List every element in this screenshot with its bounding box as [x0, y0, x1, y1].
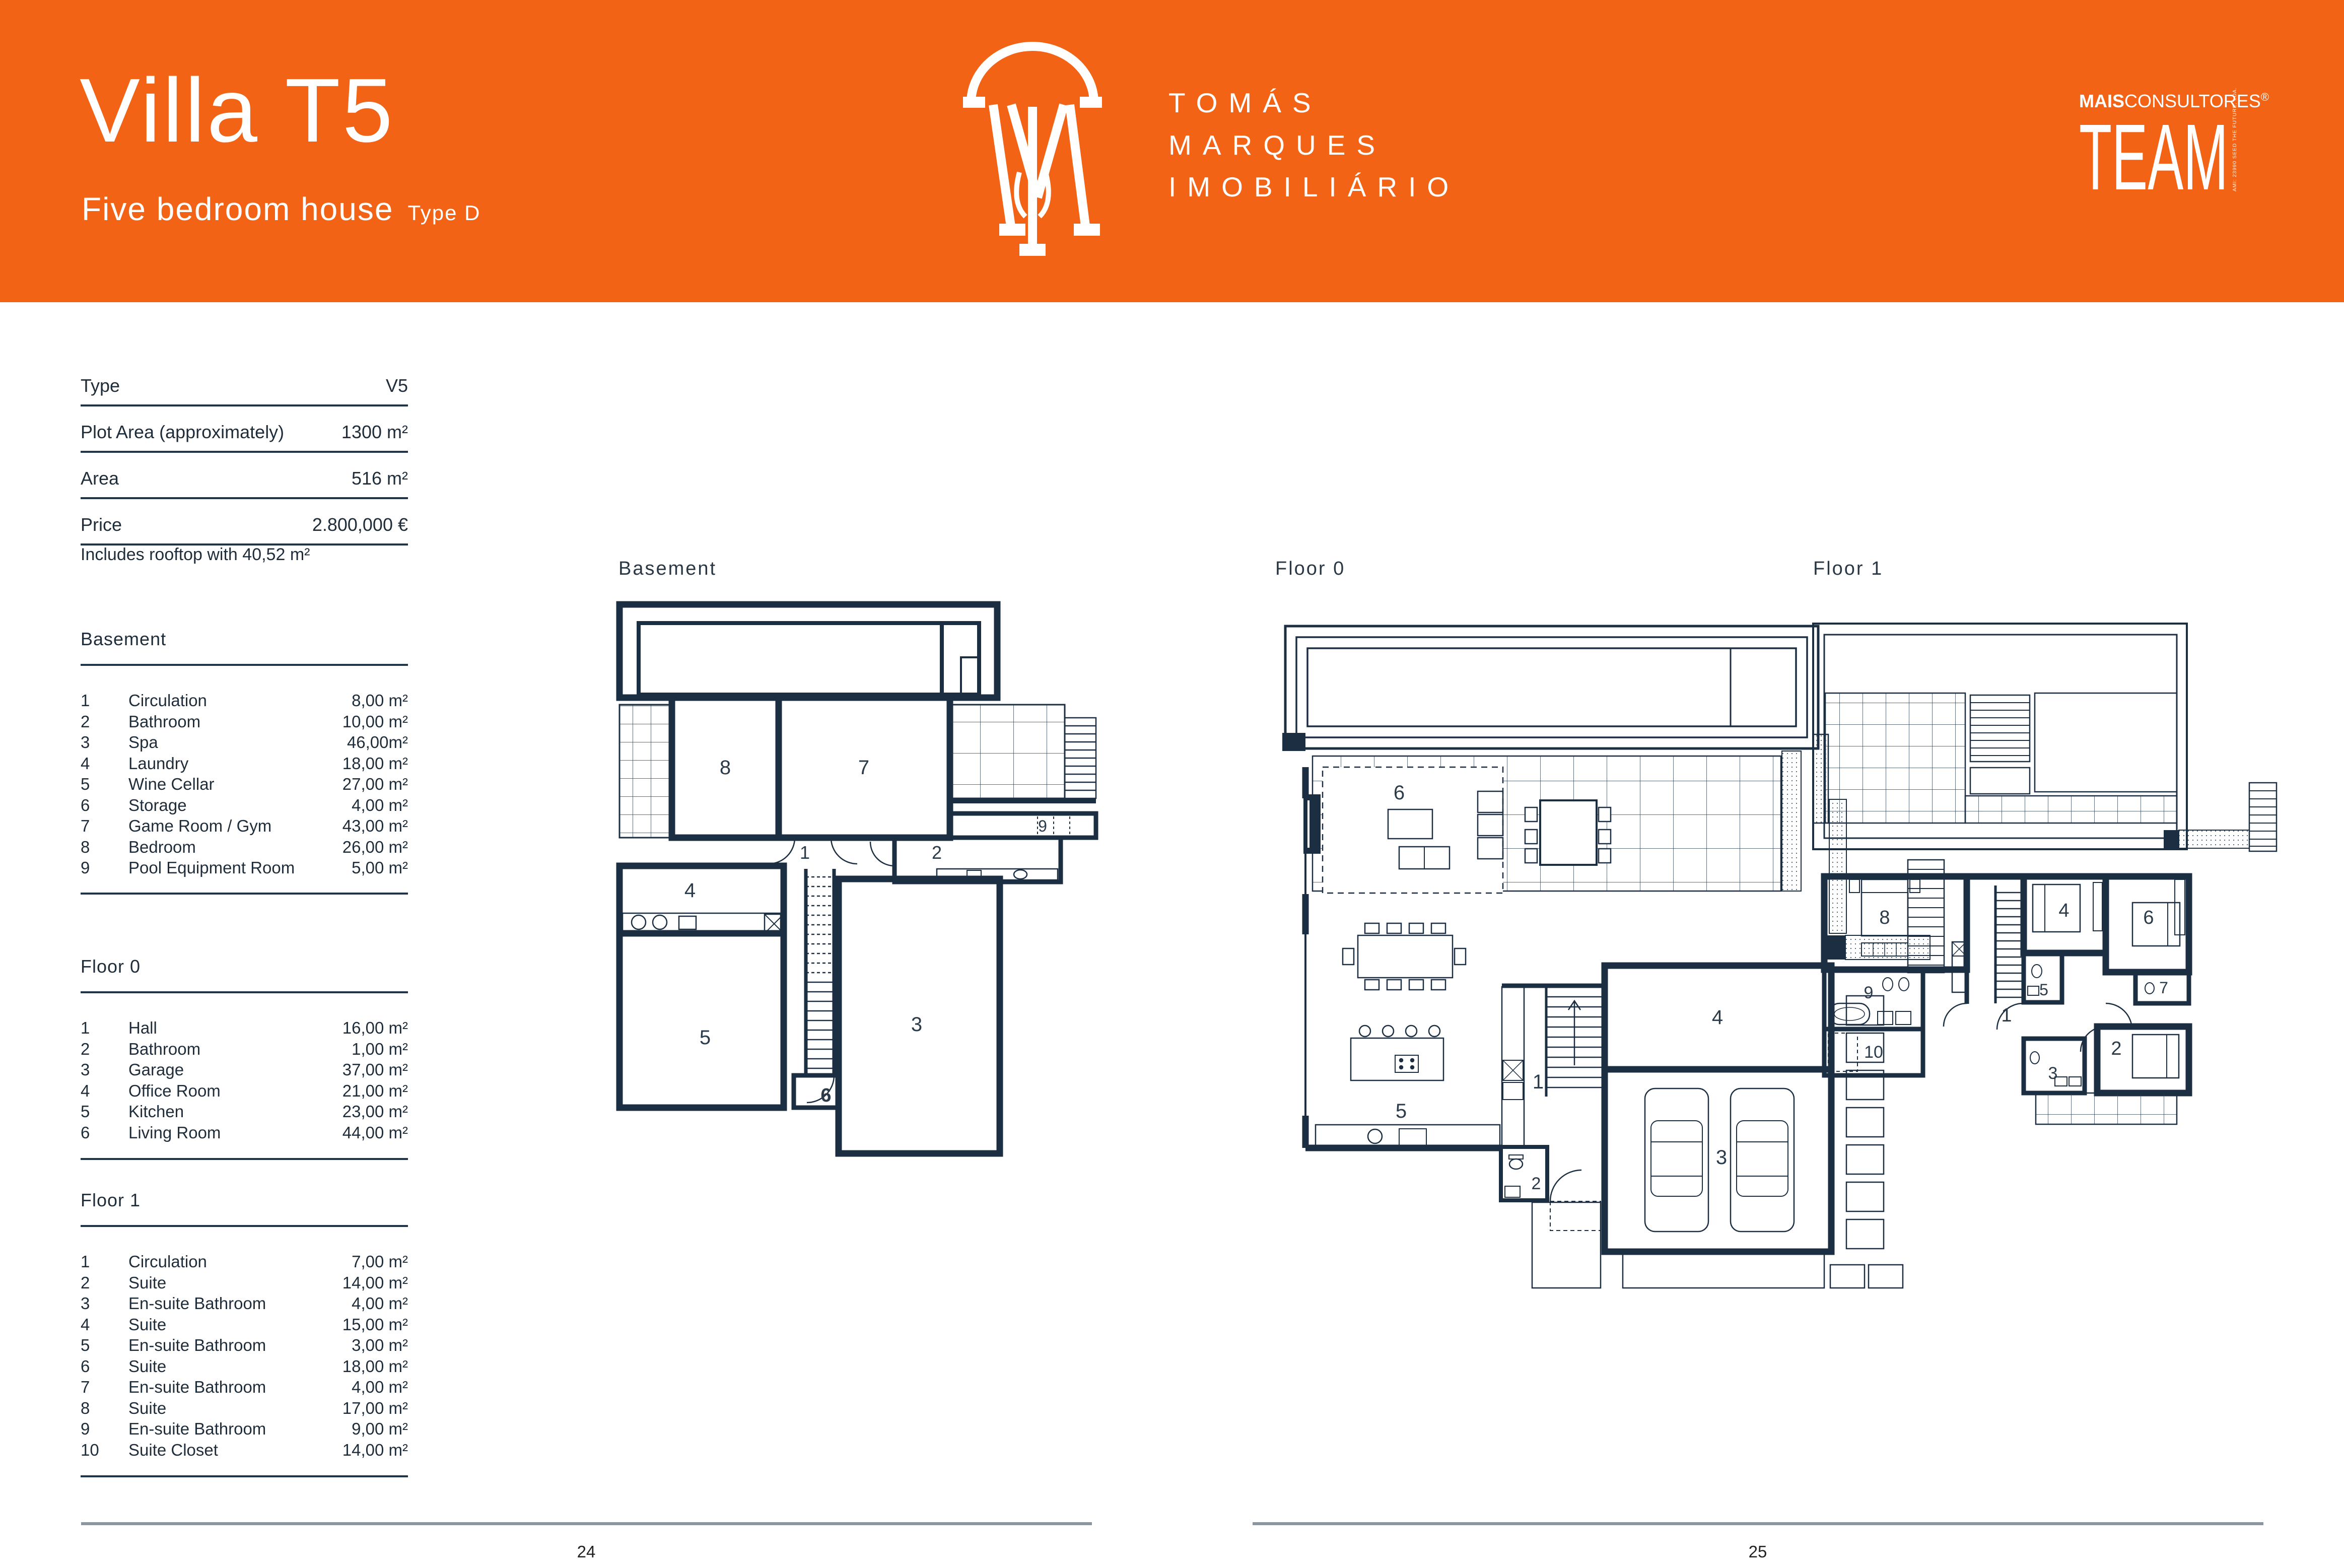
spec-value: 516 m² [352, 468, 408, 489]
floor0-stairs [1546, 987, 1603, 1097]
room-num: 5 [81, 1101, 128, 1122]
spec-table: Type V5 Plot Area (approximately) 1300 m… [81, 360, 408, 546]
room-label: 3 [911, 1013, 922, 1036]
basement-walls [619, 604, 1096, 1153]
room-area: 9,00 m² [352, 1418, 408, 1440]
legend-row: 9Pool Equipment Room5,00 m² [81, 857, 408, 878]
room-label: 7 [2159, 979, 2168, 997]
legend-floor0: Floor 0 1Hall16,00 m² 2Bathroom1,00 m² 3… [81, 956, 408, 1160]
room-name: Circulation [128, 1251, 352, 1272]
page-number-left: 24 [556, 1542, 616, 1561]
spec-label: Area [81, 468, 119, 489]
room-label: 2 [2111, 1038, 2121, 1059]
divider [81, 991, 408, 993]
room-name: Laundry [128, 753, 342, 774]
page-subtitle: Five bedroom houseType D [82, 190, 481, 228]
spec-row-area: Area 516 m² [81, 453, 408, 499]
legend-row: 4Suite15,00 m² [81, 1314, 408, 1335]
room-area: 18,00 m² [342, 1356, 408, 1377]
legend-row: 6Suite18,00 m² [81, 1356, 408, 1377]
room-num: 8 [81, 1398, 128, 1419]
room-area: 43,00 m² [342, 815, 408, 837]
room-label: 1 [800, 842, 810, 863]
room-label: 2 [932, 842, 942, 863]
room-label: 2 [1532, 1174, 1541, 1193]
room-label: 6 [1394, 782, 1405, 804]
divider [81, 1475, 408, 1477]
room-num: 6 [81, 795, 128, 816]
basement-floor-plan: 8 7 9 1 2 4 5 3 6 [614, 597, 1108, 1206]
legend-row: 7En-suite Bathroom4,00 m² [81, 1377, 408, 1398]
room-num: 7 [81, 815, 128, 837]
type-label: Type D [407, 201, 480, 225]
legend-row: 6Storage4,00 m² [81, 795, 408, 816]
legend-row: 8Bedroom26,00 m² [81, 837, 408, 858]
room-area: 4,00 m² [352, 1293, 408, 1314]
floor0-plan-title: Floor 0 [1275, 558, 1345, 580]
hall-cabinets [1502, 987, 1524, 1146]
room-label: 9 [1038, 817, 1047, 835]
legend-row: 10Suite Closet14,00 m² [81, 1440, 408, 1461]
spec-label: Plot Area (approximately) [81, 422, 284, 443]
room-num: 6 [81, 1122, 128, 1143]
room-label: 5 [700, 1027, 711, 1049]
room-label: 5 [1396, 1100, 1407, 1122]
room-num: 7 [81, 1377, 128, 1398]
room-area: 18,00 m² [342, 753, 408, 774]
room-label: 4 [1712, 1006, 1723, 1029]
room-num: 9 [81, 1418, 128, 1440]
room-name: Suite Closet [128, 1440, 342, 1461]
floor1-floor-plan: 8 9 10 4 5 6 7 1 2 3 [1793, 594, 2342, 1249]
room-label: 1 [1533, 1071, 1544, 1093]
spec-row-type: Type V5 [81, 360, 408, 406]
room-area: 5,00 m² [352, 857, 408, 878]
room-name: Hall [128, 1017, 342, 1039]
room-area: 14,00 m² [342, 1272, 408, 1293]
room-name: Garage [128, 1059, 342, 1080]
legend-row: 3Garage37,00 m² [81, 1059, 408, 1080]
room-num: 8 [81, 837, 128, 858]
team-wordmark: TEAM [2079, 116, 2230, 195]
room-num: 4 [81, 753, 128, 774]
registered-mark: ® [2261, 91, 2269, 103]
legend-basement-title: Basement [81, 629, 408, 650]
exterior-stairs [1065, 718, 1096, 798]
room-name: Suite [128, 1272, 342, 1293]
car-icon [1645, 1088, 1708, 1232]
room-label: 4 [2058, 900, 2069, 921]
maisconsultores-wordmark: MAISCONSULTORES® [2079, 91, 2253, 112]
room-label: 1 [2001, 1005, 2012, 1026]
spec-value: 2.800,000 € [312, 514, 408, 535]
legend-floor0-title: Floor 0 [81, 956, 408, 977]
room-area: 37,00 m² [342, 1059, 408, 1080]
room-label: 6 [820, 1085, 831, 1106]
room-num: 5 [81, 1335, 128, 1356]
room-area: 44,00 m² [342, 1122, 408, 1143]
page-number-right: 25 [1728, 1542, 1788, 1561]
legend-row: 2Suite14,00 m² [81, 1272, 408, 1293]
room-name: Spa [128, 732, 347, 753]
room-name: Suite [128, 1356, 342, 1377]
basement-stairs [806, 869, 834, 1075]
brand-line3: IMOBILIÁRIO [1168, 166, 1460, 209]
room-area: 10,00 m² [342, 711, 408, 732]
room-num: 2 [81, 1039, 128, 1060]
legend-row: 4Office Room21,00 m² [81, 1080, 408, 1102]
spec-label: Price [81, 514, 122, 535]
room-num: 4 [81, 1080, 128, 1102]
room-name: Bedroom [128, 837, 342, 858]
room-name: En-suite Bathroom [128, 1377, 352, 1398]
room-name: Suite [128, 1314, 342, 1335]
rooftop-note: Includes rooftop with 40,52 m² [81, 545, 310, 565]
exterior-stairs [2249, 783, 2277, 851]
room-num: 1 [81, 690, 128, 711]
team-ami-text: AMI: 23990 SEED THE FUTURE, LDA. [2232, 116, 2238, 191]
room-area: 23,00 m² [342, 1101, 408, 1122]
footer-rule-right [1253, 1522, 2263, 1525]
floor1-plan-title: Floor 1 [1813, 558, 1883, 580]
skylight [1970, 693, 2177, 794]
page-title: Villa T5 [80, 65, 395, 156]
footer-rule-left [81, 1522, 1092, 1525]
legend-row: 2Bathroom1,00 m² [81, 1039, 408, 1060]
svg-text:TEAM: TEAM [2079, 116, 2228, 195]
brand-line2: MARQUES [1168, 124, 1460, 167]
room-label: 8 [1879, 907, 1890, 928]
legend-floor1-title: Floor 1 [81, 1190, 408, 1211]
bed-icon [2132, 1035, 2179, 1078]
bath9-fixtures [1824, 970, 1923, 1029]
spec-value: V5 [386, 375, 408, 396]
room-num: 3 [81, 1293, 128, 1314]
legend-basement: Basement 1Circulation8,00 m² 2Bathroom10… [81, 629, 408, 895]
divider [81, 1225, 408, 1227]
legend-row: 1Circulation7,00 m² [81, 1251, 408, 1272]
legend-row: 4Laundry18,00 m² [81, 753, 408, 774]
room-num: 1 [81, 1017, 128, 1039]
room-num: 2 [81, 711, 128, 732]
room-num: 10 [81, 1440, 128, 1461]
room-name: Bathroom [128, 1039, 352, 1060]
room-area: 3,00 m² [352, 1335, 408, 1356]
divider [81, 1158, 408, 1160]
legend-row: 1Circulation8,00 m² [81, 690, 408, 711]
consultores-text: CONSULTORES [2124, 91, 2261, 111]
room-label: 9 [1864, 983, 1874, 1002]
room-area: 21,00 m² [342, 1080, 408, 1102]
legend-row: 7Game Room / Gym43,00 m² [81, 815, 408, 837]
room-name: Office Room [128, 1080, 342, 1102]
spec-row-plot: Plot Area (approximately) 1300 m² [81, 406, 408, 453]
floor1-stairs [1995, 885, 2024, 1003]
room-label: 10 [1864, 1043, 1883, 1062]
room-name: Bathroom [128, 711, 342, 732]
room-label: 4 [684, 879, 696, 902]
room-label: 7 [858, 757, 869, 779]
legend-row: 2Bathroom10,00 m² [81, 711, 408, 732]
room-area: 1,00 m² [352, 1039, 408, 1060]
team-logo: MAISCONSULTORES® TEAM AMI: 23990 SEED TH… [2079, 91, 2253, 195]
room-area: 27,00 m² [342, 774, 408, 795]
room-area: 15,00 m² [342, 1314, 408, 1335]
room-label: 5 [2039, 981, 2048, 999]
room-name: Storage [128, 795, 352, 816]
room-label: 6 [2143, 907, 2154, 928]
room-name: En-suite Bathroom [128, 1293, 352, 1314]
room-name: Living Room [128, 1122, 342, 1143]
room-name: En-suite Bathroom [128, 1418, 352, 1440]
floor1-room-labels: 8 9 10 4 5 6 7 1 2 3 [1864, 900, 2168, 1083]
divider [81, 893, 408, 895]
room-label: 3 [1716, 1146, 1727, 1169]
header-band: Villa T5 Five bedroom houseType D [0, 0, 2344, 302]
legend-row: 5En-suite Bathroom3,00 m² [81, 1335, 408, 1356]
spec-value: 1300 m² [341, 422, 408, 443]
brand-line1: TOMÁS [1168, 82, 1460, 124]
room-name: Pool Equipment Room [128, 857, 352, 878]
room-name: Kitchen [128, 1101, 342, 1122]
legend-row: 8Suite17,00 m² [81, 1398, 408, 1419]
room-name: En-suite Bathroom [128, 1335, 352, 1356]
mais-bold: MAIS [2079, 91, 2124, 111]
room-num: 2 [81, 1272, 128, 1293]
room-num: 1 [81, 1251, 128, 1272]
room-num: 4 [81, 1314, 128, 1335]
room-area: 17,00 m² [342, 1398, 408, 1419]
room-area: 4,00 m² [352, 1377, 408, 1398]
room-name: Game Room / Gym [128, 815, 342, 837]
room-name: Suite [128, 1398, 342, 1419]
legend-row: 5Wine Cellar27,00 m² [81, 774, 408, 795]
car-icon [1731, 1088, 1794, 1232]
room-area: 14,00 m² [342, 1440, 408, 1461]
legend-row: 3En-suite Bathroom4,00 m² [81, 1293, 408, 1314]
basement-plan-title: Basement [618, 558, 717, 580]
room-area: 16,00 m² [342, 1017, 408, 1039]
room-label: 8 [720, 757, 731, 779]
kitchen-furniture [1316, 923, 1500, 1148]
room-area: 26,00 m² [342, 837, 408, 858]
room-area: 46,00m² [347, 732, 408, 753]
subtitle-text: Five bedroom house [82, 191, 393, 227]
room-area: 4,00 m² [352, 795, 408, 816]
room-area: 7,00 m² [352, 1251, 408, 1272]
legend-row: 6Living Room44,00 m² [81, 1122, 408, 1143]
divider [81, 664, 408, 666]
room-num: 6 [81, 1356, 128, 1377]
room-num: 3 [81, 732, 128, 753]
bed-icon [2132, 879, 2185, 946]
legend-row: 5Kitchen23,00 m² [81, 1101, 408, 1122]
brochure-page: Villa T5 Five bedroom houseType D [0, 0, 2344, 1568]
legend-row: 1Hall16,00 m² [81, 1017, 408, 1039]
room-name: Wine Cellar [128, 774, 342, 795]
legend-row: 9En-suite Bathroom9,00 m² [81, 1418, 408, 1440]
spec-row-price: Price 2.800,000 € [81, 499, 408, 546]
room-area: 8,00 m² [352, 690, 408, 711]
room-num: 5 [81, 774, 128, 795]
room-label: 3 [2048, 1064, 2058, 1083]
legend-floor1: Floor 1 1Circulation7,00 m² 2Suite14,00 … [81, 1190, 408, 1477]
room-num: 3 [81, 1059, 128, 1080]
room-num: 9 [81, 857, 128, 878]
brand-wordmark: TOMÁS MARQUES IMOBILIÁRIO [1168, 82, 1460, 209]
tm-monogram-icon [957, 36, 1108, 263]
legend-row: 3Spa46,00m² [81, 732, 408, 753]
spec-label: Type [81, 375, 120, 396]
room-name: Circulation [128, 690, 352, 711]
